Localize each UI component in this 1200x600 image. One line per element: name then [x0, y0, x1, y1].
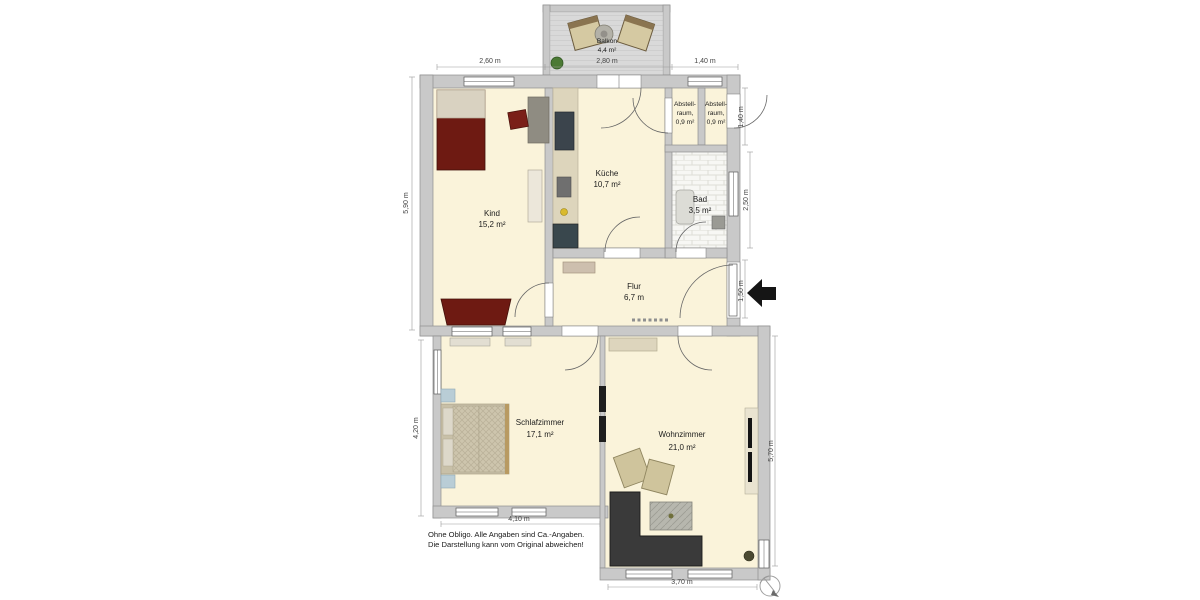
schlafzimmer-label: Schlafzimmer [516, 418, 565, 427]
abstellraum-1-label: Abstell- [674, 101, 696, 108]
wohnzimmer-label: Wohnzimmer [659, 430, 706, 439]
kind-door [545, 283, 553, 317]
dim-bottom-left: 4,10 m [508, 516, 530, 523]
sideboard-wohnzimmer [609, 338, 657, 351]
fridge [553, 224, 578, 248]
sideboard-flur [563, 262, 595, 273]
furniture-kueche [553, 88, 578, 248]
flur-area: 6,7 m [624, 293, 644, 302]
schlafzimmer-area: 17,1 m² [526, 430, 553, 439]
floorplan-canvas: Balkon 4,4 m² [0, 0, 1200, 600]
dim-right-lower: 5,70 m [768, 440, 775, 462]
sofa-kind [441, 299, 511, 325]
abstellraum-2-area: 0,9 m² [707, 119, 726, 126]
disclaimer-line-1: Ohne Obligo. Alle Angaben sind Ca.-Angab… [428, 530, 584, 539]
disclaimer-line-2: Die Darstellung kann vom Original abweic… [428, 540, 584, 549]
radiator [505, 338, 531, 346]
abstellraum-1-label: raum, [677, 110, 694, 117]
dim-top-middle: 2,80 m [596, 58, 618, 65]
wohnzimmer-area: 21,0 m² [668, 443, 695, 452]
nightstand [441, 475, 455, 488]
plant-icon [744, 551, 754, 561]
shelf [528, 170, 542, 222]
bad-label: Bad [693, 195, 707, 204]
wohnzimmer-door [678, 326, 712, 336]
nightstand [441, 389, 455, 402]
dim-top-right: 1,40 m [694, 58, 716, 65]
radiator [450, 338, 490, 346]
kitchen-knob [561, 209, 568, 216]
bad-door [676, 248, 706, 258]
entrance-arrow-icon [747, 279, 776, 307]
abstellraum-1-area: 0,9 m² [676, 119, 695, 126]
kueche-area: 10,7 m² [593, 180, 620, 189]
kind-area: 15,2 m² [478, 220, 505, 229]
dim-left-upper: 5,90 m [403, 192, 410, 214]
dim-right-abstell: 1,40 m [738, 106, 745, 128]
kitchen-sink [555, 112, 574, 150]
dim-bottom-right: 3,70 m [671, 579, 693, 586]
radiator [748, 452, 752, 482]
dim-right-entrance: 1,50 m [738, 280, 745, 302]
kind-label: Kind [484, 209, 500, 218]
radiator [748, 418, 752, 448]
abstellraum-2-label: raum, [708, 110, 725, 117]
dim-left-lower: 4,20 m [413, 417, 420, 439]
abstellraum-2-label: Abstell- [705, 101, 727, 108]
kueche-door [604, 248, 640, 258]
kitchen-appliance [557, 177, 571, 197]
dim-right-bad: 2,50 m [743, 189, 750, 211]
abstellraum-1-door [665, 98, 672, 133]
schlafzimmer-door [562, 326, 598, 336]
desk [528, 97, 549, 143]
dim-top-left: 2,60 m [479, 58, 501, 65]
bath-sink [712, 216, 725, 229]
wall-radiator [599, 416, 606, 442]
kueche-label: Küche [596, 169, 619, 178]
wall-radiator [599, 386, 606, 412]
bad-area: 3,5 m² [689, 206, 712, 215]
balcony-label: Balkon [597, 38, 617, 45]
disclaimer: Ohne Obligo. Alle Angaben sind Ca.-Angab… [428, 530, 584, 549]
desk-chair [508, 110, 529, 130]
balcony-area: 4,4 m² [598, 47, 617, 54]
flur-label: Flur [627, 282, 641, 291]
floorplan-svg: Balkon 4,4 m² [0, 0, 1200, 600]
